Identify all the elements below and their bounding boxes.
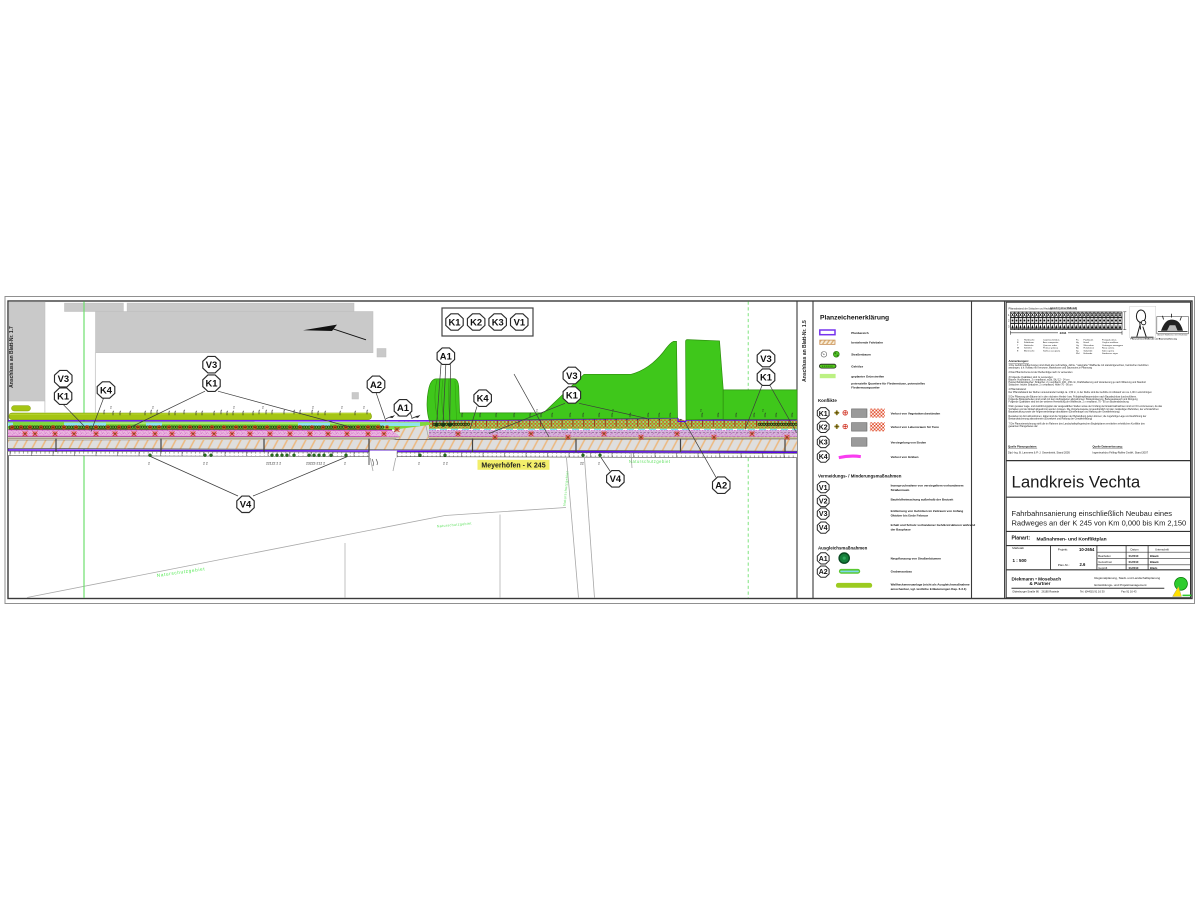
- svg-text:2: 2: [700, 409, 702, 413]
- svg-text:bestehende Fahrbahn: bestehende Fahrbahn: [851, 341, 883, 345]
- svg-text:Oktober bis Ende Februar: Oktober bis Ende Februar: [891, 514, 929, 518]
- svg-text:Erhalt und Schutz vorhandener: Erhalt und Schutz vorhandener Gehölzstru…: [891, 523, 976, 527]
- svg-text:Fahrbahnsanierung einschließli: Fahrbahnsanierung einschließlich Neubau …: [1012, 509, 1173, 518]
- svg-text:2: 2: [536, 409, 538, 413]
- svg-text:Anschluss an Blatt-Nr. 1.7: Anschluss an Blatt-Nr. 1.7: [9, 326, 15, 388]
- svg-text:Crataegus monogyna: Crataegus monogyna: [1102, 344, 1124, 347]
- svg-text:Radweges an der K 245 von Km 0: Radweges an der K 245 von Km 0,000 bis K…: [1012, 519, 1187, 528]
- svg-text:Konflikte: Konflikte: [818, 398, 837, 403]
- svg-text:Quelle Datenerfassung:: Quelle Datenerfassung:: [1093, 444, 1123, 448]
- svg-text:K2: K2: [470, 316, 482, 327]
- svg-text:& Partner: & Partner: [1029, 581, 1050, 586]
- svg-text:Wallheckenneuanlage (nicht als: Wallheckenneuanlage (nicht als Ausgleich…: [891, 583, 970, 587]
- svg-text:Corylus avellana: Corylus avellana: [1102, 341, 1119, 344]
- svg-text:K1: K1: [449, 316, 461, 327]
- svg-text:Quelle Planungsdaten:: Quelle Planungsdaten:: [1008, 444, 1037, 448]
- svg-text:K1: K1: [57, 391, 69, 402]
- svg-text:Weissdorn: Weissdorn: [1084, 344, 1095, 347]
- svg-text:Regionalplanung, Stadt- und La: Regionalplanung, Stadt- und Landschaftsp…: [1094, 576, 1160, 580]
- svg-text:23222-212 2: 23222-212 2: [306, 462, 325, 466]
- svg-text:V3: V3: [58, 373, 69, 384]
- svg-text:Salix caprea: Salix caprea: [1102, 349, 1115, 352]
- svg-text:26180 Rastede: 26180 Rastede: [1042, 590, 1060, 594]
- svg-text:Planzeichenerklärung: Planzeichenerklärung: [820, 314, 889, 321]
- svg-text:Grabenausbau: Grabenausbau: [891, 569, 912, 573]
- svg-text:Salweide: Salweide: [1084, 350, 1094, 352]
- svg-text:Gehölze: Gehölze: [851, 364, 863, 368]
- svg-text:anzulegen, d.h. Aufbau mit Ker: anzulegen, d.h. Aufbau mit Kernzone, Man…: [1009, 367, 1093, 370]
- svg-text:Tel. (04402) 91 16 30: Tel. (04402) 91 16 30: [1080, 590, 1105, 594]
- svg-text:Feldahorn: Feldahorn: [1024, 341, 1035, 344]
- svg-text:K2: K2: [819, 425, 828, 432]
- svg-text:A2: A2: [715, 480, 727, 491]
- svg-text:K1: K1: [206, 378, 218, 389]
- svg-text:V4: V4: [819, 525, 828, 532]
- svg-text:Anmerkungen:: Anmerkungen:: [1009, 359, 1029, 363]
- svg-text:Entwicklungs- und Projektmanag: Entwicklungs- und Projektmanagement: [1094, 583, 1146, 587]
- svg-text:2: 2: [110, 406, 112, 410]
- svg-text:Hundsrose: Hundsrose: [1084, 347, 1095, 350]
- svg-text:Faulbaum: Faulbaum: [1084, 339, 1094, 341]
- svg-text:K4: K4: [100, 384, 113, 395]
- svg-text:Oldenburger Straße 86: Oldenburger Straße 86: [1012, 590, 1039, 594]
- svg-text:Blaack: Blaack: [1150, 554, 1159, 558]
- svg-text:Ansicht (ohne Maßstab): Ansicht (ohne Maßstab): [1050, 307, 1077, 310]
- svg-text:Ingenieurbüro Frilling-Rolfes: Ingenieurbüro Frilling-Rolfes GmbH, Stan…: [1093, 451, 1149, 455]
- svg-text:2: 2: [312, 406, 314, 410]
- svg-text:Straßenbaum: Straßenbaum: [851, 353, 871, 357]
- svg-text:Gezeichnet: Gezeichnet: [1098, 560, 1112, 564]
- svg-text:Unterschrift: Unterschrift: [1155, 547, 1169, 551]
- svg-text:Blaack: Blaack: [1150, 560, 1159, 564]
- svg-text:A1: A1: [440, 351, 452, 362]
- svg-text:Der Pflanzabstand der Reihen u: Der Pflanzabstand der Reihen untereinand…: [1009, 391, 1153, 394]
- svg-text:Sorbus aucuparia: Sorbus aucuparia: [1043, 349, 1061, 352]
- svg-text:Anschluss an Blatt-Nr. 1.5: Anschluss an Blatt-Nr. 1.5: [802, 320, 808, 382]
- svg-text:Entfernung von Gehölzen im Zei: Entfernung von Gehölzen im Zeitraum von …: [891, 509, 964, 513]
- svg-text:A2: A2: [370, 379, 382, 390]
- svg-text:Eberesche: Eberesche: [1024, 349, 1035, 352]
- svg-text:2: 2: [363, 406, 365, 410]
- svg-text:2: 2: [233, 406, 235, 410]
- svg-text:01/2010: 01/2010: [1129, 560, 1139, 564]
- svg-text:K3: K3: [492, 316, 504, 327]
- svg-text:Carpinus betulus: Carpinus betulus: [1043, 338, 1060, 341]
- svg-text:V4: V4: [610, 473, 622, 484]
- svg-text:Schlehe: Schlehe: [1024, 348, 1033, 350]
- svg-text:Sträucher: leichte Sträuche: Sträucher: leichte Sträucher, 2 x verpfl…: [1009, 384, 1073, 387]
- svg-text:Bestandssicherung abzustimmen: Bestandssicherung abzustimmen (Einzelwer…: [1009, 418, 1093, 421]
- svg-text:Planart:: Planart:: [1012, 535, 1031, 541]
- svg-text:geplanter Grünstreifen: geplanter Grünstreifen: [851, 374, 884, 378]
- svg-text:Projekt:: Projekt:: [1058, 548, 1068, 552]
- svg-text:2.6: 2.6: [1080, 562, 1086, 567]
- svg-text:K1: K1: [760, 372, 772, 383]
- svg-text:Vermeidungs- / Minderungsmaßna: Vermeidungs- / Minderungsmaßnahmen: [818, 474, 902, 479]
- svg-text:2: 2: [344, 462, 346, 466]
- svg-text:1 : 500: 1 : 500: [1013, 558, 1028, 563]
- svg-text:Bauabwicklung sowie der Angren: Bauabwicklung sowie der Angrenzerbelange…: [1009, 410, 1120, 413]
- svg-text:Frangula alnus: Frangula alnus: [1102, 338, 1117, 341]
- svg-text:2: 2: [762, 409, 764, 413]
- svg-text:K4: K4: [819, 454, 828, 461]
- svg-text:Maßnahmen- und Konfliktplan: Maßnahmen- und Konfliktplan: [1037, 536, 1107, 542]
- svg-text:K4: K4: [477, 393, 490, 404]
- svg-text:Folgende Qualitäten sind bei d: Folgende Qualitäten sind bei der weitere…: [1009, 401, 1130, 404]
- svg-text:10-2654: 10-2654: [1079, 547, 1095, 552]
- svg-text:A1: A1: [397, 402, 409, 413]
- svg-text:Pflanzabstand der Sträucher un: Pflanzabstand der Sträucher und Hecken: [1009, 307, 1053, 310]
- svg-text:Versiegelung von Boden: Versiegelung von Boden: [891, 440, 927, 444]
- svg-text:01/2010: 01/2010: [1129, 554, 1139, 558]
- svg-text:anrechenbar, vgl. textliche Er: anrechenbar, vgl. textliche Erläuterunge…: [891, 587, 967, 591]
- svg-text:Maßstab: Maßstab: [1012, 546, 1024, 550]
- svg-text:der Bauphase: der Bauphase: [891, 527, 911, 531]
- svg-text:Verlust von Vegetationsbeständ: Verlust von Vegetationsbeständen: [891, 412, 941, 416]
- svg-text:K1: K1: [566, 389, 578, 400]
- svg-text:K3: K3: [819, 440, 828, 447]
- svg-text:Sambucus nigra: Sambucus nigra: [1102, 352, 1119, 355]
- svg-text:Ausgleichsmaßnahmen: Ausgleichsmaßnahmen: [818, 546, 868, 551]
- svg-text:K1: K1: [819, 411, 828, 418]
- svg-text:22122 2 2: 22122 2 2: [266, 462, 281, 466]
- svg-text:2: 2: [418, 462, 420, 466]
- svg-text:V1: V1: [819, 485, 828, 492]
- svg-text:2 2: 2 2: [203, 462, 208, 466]
- svg-text:2 Das Pflanzschema ist der Re: 2 Das Pflanzschema ist der Reihenfolge n…: [1009, 371, 1074, 374]
- svg-text:A2: A2: [819, 569, 828, 576]
- svg-text:Verlust von Gräben: Verlust von Gräben: [891, 455, 919, 459]
- svg-text:V3: V3: [566, 370, 577, 381]
- svg-text:Rosa canina: Rosa canina: [1102, 348, 1115, 350]
- svg-text:V3: V3: [819, 511, 828, 518]
- svg-text:Neupflanzung von Straßenbäumen: Neupflanzung von Straßenbäumen: [891, 556, 941, 560]
- svg-text:Stieleiche: Stieleiche: [1024, 344, 1034, 347]
- svg-text:(Ansicht Wallhecke, ohne Maßst: (Ansicht Wallhecke, ohne Maßstab): [1158, 334, 1188, 337]
- svg-text:V3: V3: [206, 359, 217, 370]
- svg-text:2: 2: [341, 406, 343, 410]
- svg-text:V1: V1: [514, 316, 525, 327]
- svg-text:22: 22: [580, 462, 584, 466]
- svg-text:Fledermausquartier: Fledermausquartier: [851, 386, 880, 390]
- svg-text:2234: 2234: [1060, 331, 1067, 335]
- svg-text:Dipl.-Ing. B. Lammers & P.-J: Dipl.-Ing. B. Lammers & P.-J. Ossenbrink…: [1008, 451, 1070, 455]
- svg-text:gesamten Plangebietes dar: gesamten Plangebietes dar: [1009, 425, 1038, 428]
- svg-text:Hainbuche: Hainbuche: [1024, 339, 1035, 341]
- svg-text:2 2: 2 2: [443, 462, 448, 466]
- svg-text:Pflanzschema Wallhecke und Bau: Pflanzschema Wallhecke und Baumverpflanz…: [1131, 339, 1178, 341]
- svg-text:Verlust von Lebensraum für Tie: Verlust von Lebensraum für Tiere: [891, 425, 940, 429]
- svg-text:V2: V2: [819, 499, 828, 506]
- svg-text:Meyerhöfen - K 245: Meyerhöfen - K 245: [481, 462, 545, 469]
- svg-text:Planbereich: Planbereich: [851, 331, 868, 335]
- svg-text:Inanspruchnahme von versiegelt: Inanspruchnahme von versiegeltem vorhand…: [891, 483, 964, 487]
- svg-text:2: 2: [152, 406, 154, 410]
- svg-text:Straßenraum: Straßenraum: [891, 488, 910, 492]
- svg-text:2: 2: [148, 462, 150, 466]
- svg-text:Prunus spinosa: Prunus spinosa: [1043, 347, 1059, 350]
- svg-text:A1: A1: [819, 556, 828, 563]
- svg-text:Quercus robur: Quercus robur: [1043, 344, 1057, 347]
- svg-text:Acer campestre: Acer campestre: [1043, 341, 1059, 344]
- svg-text:Plan-Nr.:: Plan-Nr.:: [1058, 563, 1070, 567]
- svg-text:2: 2: [262, 406, 264, 410]
- svg-text:Naturschutzgebiet: Naturschutzgebiet: [629, 459, 671, 464]
- svg-text:2: 2: [598, 462, 600, 466]
- svg-text:Baufeldfreimachung außerhalb d: Baufeldfreimachung außerhalb der Brutzei…: [891, 498, 954, 502]
- svg-text:Datum: Datum: [1131, 547, 1140, 551]
- svg-text:V3: V3: [760, 353, 771, 364]
- svg-text:Fax 91 16 43: Fax 91 16 43: [1121, 590, 1137, 594]
- svg-text:Holunder: Holunder: [1084, 352, 1093, 355]
- svg-text:V4: V4: [240, 499, 252, 510]
- svg-text:Hasel: Hasel: [1084, 342, 1090, 344]
- svg-text:Bearbeitet: Bearbeitet: [1098, 554, 1111, 558]
- svg-text:Landkreis Vechta: Landkreis Vechta: [1012, 473, 1141, 492]
